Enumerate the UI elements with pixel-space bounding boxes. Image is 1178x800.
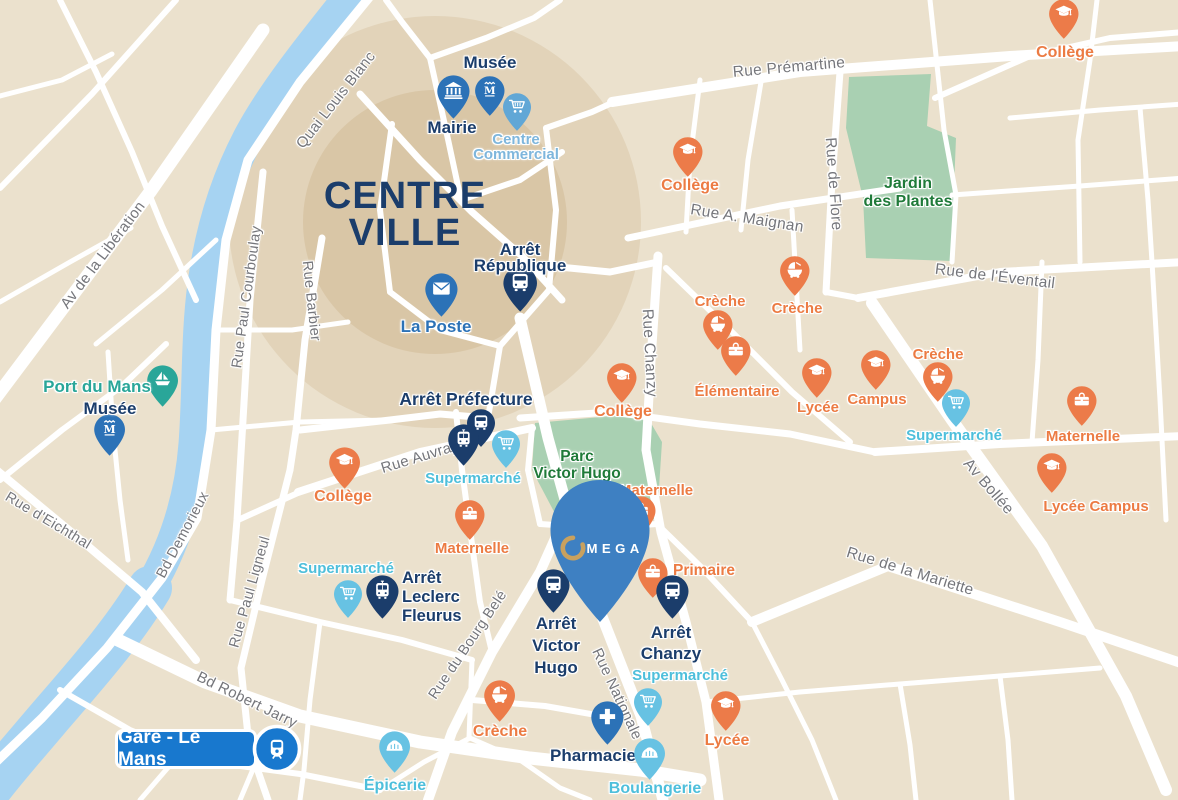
poi-label-lycee-campus-line1: Lycée Campus — [1043, 499, 1148, 514]
centre-ville-title-line2: VILLE — [324, 215, 486, 252]
envelope-icon — [433, 282, 450, 294]
gare-badge-label: Gare - Le Mans — [118, 727, 254, 771]
poi-label-pharmacie-line1: Pharmacie — [550, 747, 636, 764]
poi-pin-arret-prefecture[interactable] — [446, 423, 481, 467]
poi-label-musee-centre-line1: Musée — [464, 54, 517, 71]
poi-label-lycee-centre-line1: Lycée — [797, 400, 839, 415]
poi-label-centre-commercial-line2: Commercial — [473, 147, 559, 162]
poi-pin-supermarche-ouest[interactable] — [332, 579, 364, 619]
museum-icon: M — [484, 82, 496, 97]
poi-label-lycee-sud-line1: Lycée — [705, 733, 750, 749]
poi-label-supermarche-est: Supermarché — [906, 428, 1002, 443]
area-label-jardin-des-plantes-line2: des Plantes — [864, 193, 953, 211]
poi-label-arret-leclerc-fleurus-line2: Leclerc — [402, 588, 462, 607]
poi-label-college-nord: Collège — [661, 178, 719, 194]
centre-ville-title-line1: CENTRE — [324, 178, 486, 215]
poi-label-lycee-campus: Lycée Campus — [1043, 499, 1148, 514]
poi-label-musee-ouest: Musée — [84, 400, 137, 417]
poi-label-la-poste-line1: La Poste — [401, 318, 472, 335]
poi-label-lycee-centre: Lycée — [797, 400, 839, 415]
poi-pin-arret-leclerc-fleurus[interactable] — [364, 574, 401, 620]
poi-label-lycee-sud: Lycée — [705, 733, 750, 749]
poi-pin-supermarche-sud[interactable] — [632, 687, 664, 727]
poi-label-la-poste: La Poste — [401, 318, 472, 335]
poi-pin-pharmacie[interactable] — [589, 700, 626, 746]
omega-property-pin[interactable]: MEGA — [545, 476, 655, 631]
centre-ville-title: CENTRE VILLE — [324, 178, 486, 252]
poi-label-college-ouest: Collège — [314, 489, 372, 505]
poi-pin-maternelle-est[interactable] — [1065, 385, 1099, 427]
poi-label-arret-leclerc-fleurus: ArrêtLeclercFleurus — [402, 569, 462, 626]
poi-label-creche-sud: Crèche — [473, 724, 527, 740]
poi-label-arret-leclerc-fleurus-line3: Fleurus — [402, 607, 462, 626]
poi-label-college-ouest-line1: Collège — [314, 489, 372, 505]
poi-pin-college-nord-est[interactable] — [1047, 0, 1081, 40]
poi-label-creche-est: Crèche — [913, 347, 964, 362]
area-label-jardin-des-plantes-line1: Jardin — [864, 175, 953, 193]
poi-pin-lycee-sud[interactable] — [709, 690, 743, 732]
poi-label-arret-prefecture: Arrêt Préfecture — [399, 391, 532, 408]
poi-label-epicerie-line1: Épicerie — [364, 778, 426, 794]
poi-pin-creche-centre-2[interactable] — [778, 255, 812, 297]
poi-pin-supermarche-centre[interactable] — [490, 429, 522, 469]
tram-icon — [458, 429, 470, 446]
poi-label-maternelle-ouest-line1: Maternelle — [435, 541, 509, 556]
poi-label-elementaire-line1: Élémentaire — [694, 384, 779, 399]
omega-logo-text: MEGA — [587, 541, 644, 556]
poi-label-boulangerie: Boulangerie — [609, 781, 701, 797]
poi-pin-musee-ouest[interactable]: M — [92, 413, 127, 457]
poi-label-creche-est-line1: Crèche — [913, 347, 964, 362]
poi-label-college-nord-line1: Collège — [661, 178, 719, 194]
poi-label-arret-prefecture-line1: Arrêt Préfecture — [399, 391, 532, 408]
poi-label-boulangerie-line1: Boulangerie — [609, 781, 701, 797]
poi-label-mairie-line1: Mairie — [427, 119, 476, 136]
poi-label-musee-ouest-line1: Musée — [84, 400, 137, 417]
poi-label-creche-sud-line1: Crèche — [473, 724, 527, 740]
poi-label-epicerie: Épicerie — [364, 778, 426, 794]
poi-label-arret-leclerc-fleurus-line1: Arrêt — [402, 569, 462, 588]
poi-label-creche-centre-2-line1: Crèche — [772, 301, 823, 316]
poi-label-supermarche-est-line1: Supermarché — [906, 428, 1002, 443]
poi-label-supermarche-centre: Supermarché — [425, 471, 521, 486]
poi-label-creche-centre-2: Crèche — [772, 301, 823, 316]
museum-icon: M — [104, 421, 116, 436]
poi-pin-lycee-centre[interactable] — [800, 357, 834, 399]
poi-label-campus-line1: Campus — [847, 392, 906, 407]
poi-label-creche-centre-1: Crèche — [695, 294, 746, 309]
gare-badge-label-box[interactable]: Gare - Le Mans — [115, 729, 257, 769]
poi-pin-boulangerie[interactable] — [632, 737, 667, 781]
poi-label-musee-centre: Musée — [464, 54, 517, 71]
poi-pin-elementaire[interactable] — [719, 335, 753, 377]
poi-label-port-du-mans: Port du Mans — [43, 378, 151, 395]
train-icon[interactable] — [250, 722, 304, 776]
poi-label-arret-republique-line2: République — [474, 258, 567, 274]
poi-label-arret-victor-hugo-line2: Victor — [532, 635, 580, 657]
poi-label-arret-republique: ArrêtRépublique — [474, 242, 567, 274]
poi-label-maternelle-ouest: Maternelle — [435, 541, 509, 556]
poi-pin-epicerie[interactable] — [377, 730, 412, 774]
poi-pin-college-ouest[interactable] — [327, 446, 362, 490]
poi-label-supermarche-sud: Supermarché — [632, 668, 728, 683]
poi-label-college-nord-est: Collège — [1036, 45, 1094, 61]
poi-label-supermarche-centre-line1: Supermarché — [425, 471, 521, 486]
poi-label-port-du-mans-line1: Port du Mans — [43, 378, 151, 395]
poi-pin-centre-commercial[interactable] — [501, 92, 533, 132]
poi-pin-supermarche-est[interactable] — [940, 388, 972, 428]
poi-label-supermarche-sud-line1: Supermarché — [632, 668, 728, 683]
poi-pin-creche-sud[interactable] — [482, 679, 517, 723]
poi-label-college-nord-est-line1: Collège — [1036, 45, 1094, 61]
svg-text:M: M — [104, 423, 116, 436]
poi-pin-college-parc[interactable] — [605, 362, 639, 404]
poi-label-arret-victor-hugo-line3: Hugo — [532, 657, 580, 679]
poi-pin-mairie[interactable] — [435, 74, 472, 120]
poi-label-pharmacie: Pharmacie — [550, 747, 636, 764]
poi-label-centre-commercial: CentreCommercial — [473, 132, 559, 162]
poi-label-mairie: Mairie — [427, 119, 476, 136]
poi-pin-arret-chanzy[interactable] — [654, 574, 691, 620]
poi-pin-la-poste[interactable] — [423, 272, 460, 318]
poi-label-elementaire: Élémentaire — [694, 384, 779, 399]
area-label-parc-victor-hugo-line1: Parc — [533, 448, 621, 465]
poi-label-maternelle-est: Maternelle — [1046, 429, 1120, 444]
poi-pin-lycee-campus[interactable] — [1035, 452, 1069, 494]
poi-pin-maternelle-ouest[interactable] — [453, 499, 487, 541]
poi-label-college-parc-line1: Collège — [594, 404, 652, 420]
tram-icon — [376, 581, 389, 599]
area-label-jardin-des-plantes: Jardindes Plantes — [864, 175, 953, 211]
poi-pin-campus[interactable] — [859, 349, 893, 391]
poi-label-campus: Campus — [847, 392, 906, 407]
poi-label-maternelle-est-line1: Maternelle — [1046, 429, 1120, 444]
city-map: Quai Louis BlancAv de la LibérationRue P… — [0, 0, 1178, 800]
poi-label-college-parc: Collège — [594, 404, 652, 420]
poi-label-arret-chanzy-line2: Chanzy — [641, 643, 701, 664]
poi-pin-college-nord[interactable] — [671, 136, 705, 178]
poi-label-creche-centre-1-line1: Crèche — [695, 294, 746, 309]
poi-label-centre-commercial-line1: Centre — [473, 132, 559, 147]
